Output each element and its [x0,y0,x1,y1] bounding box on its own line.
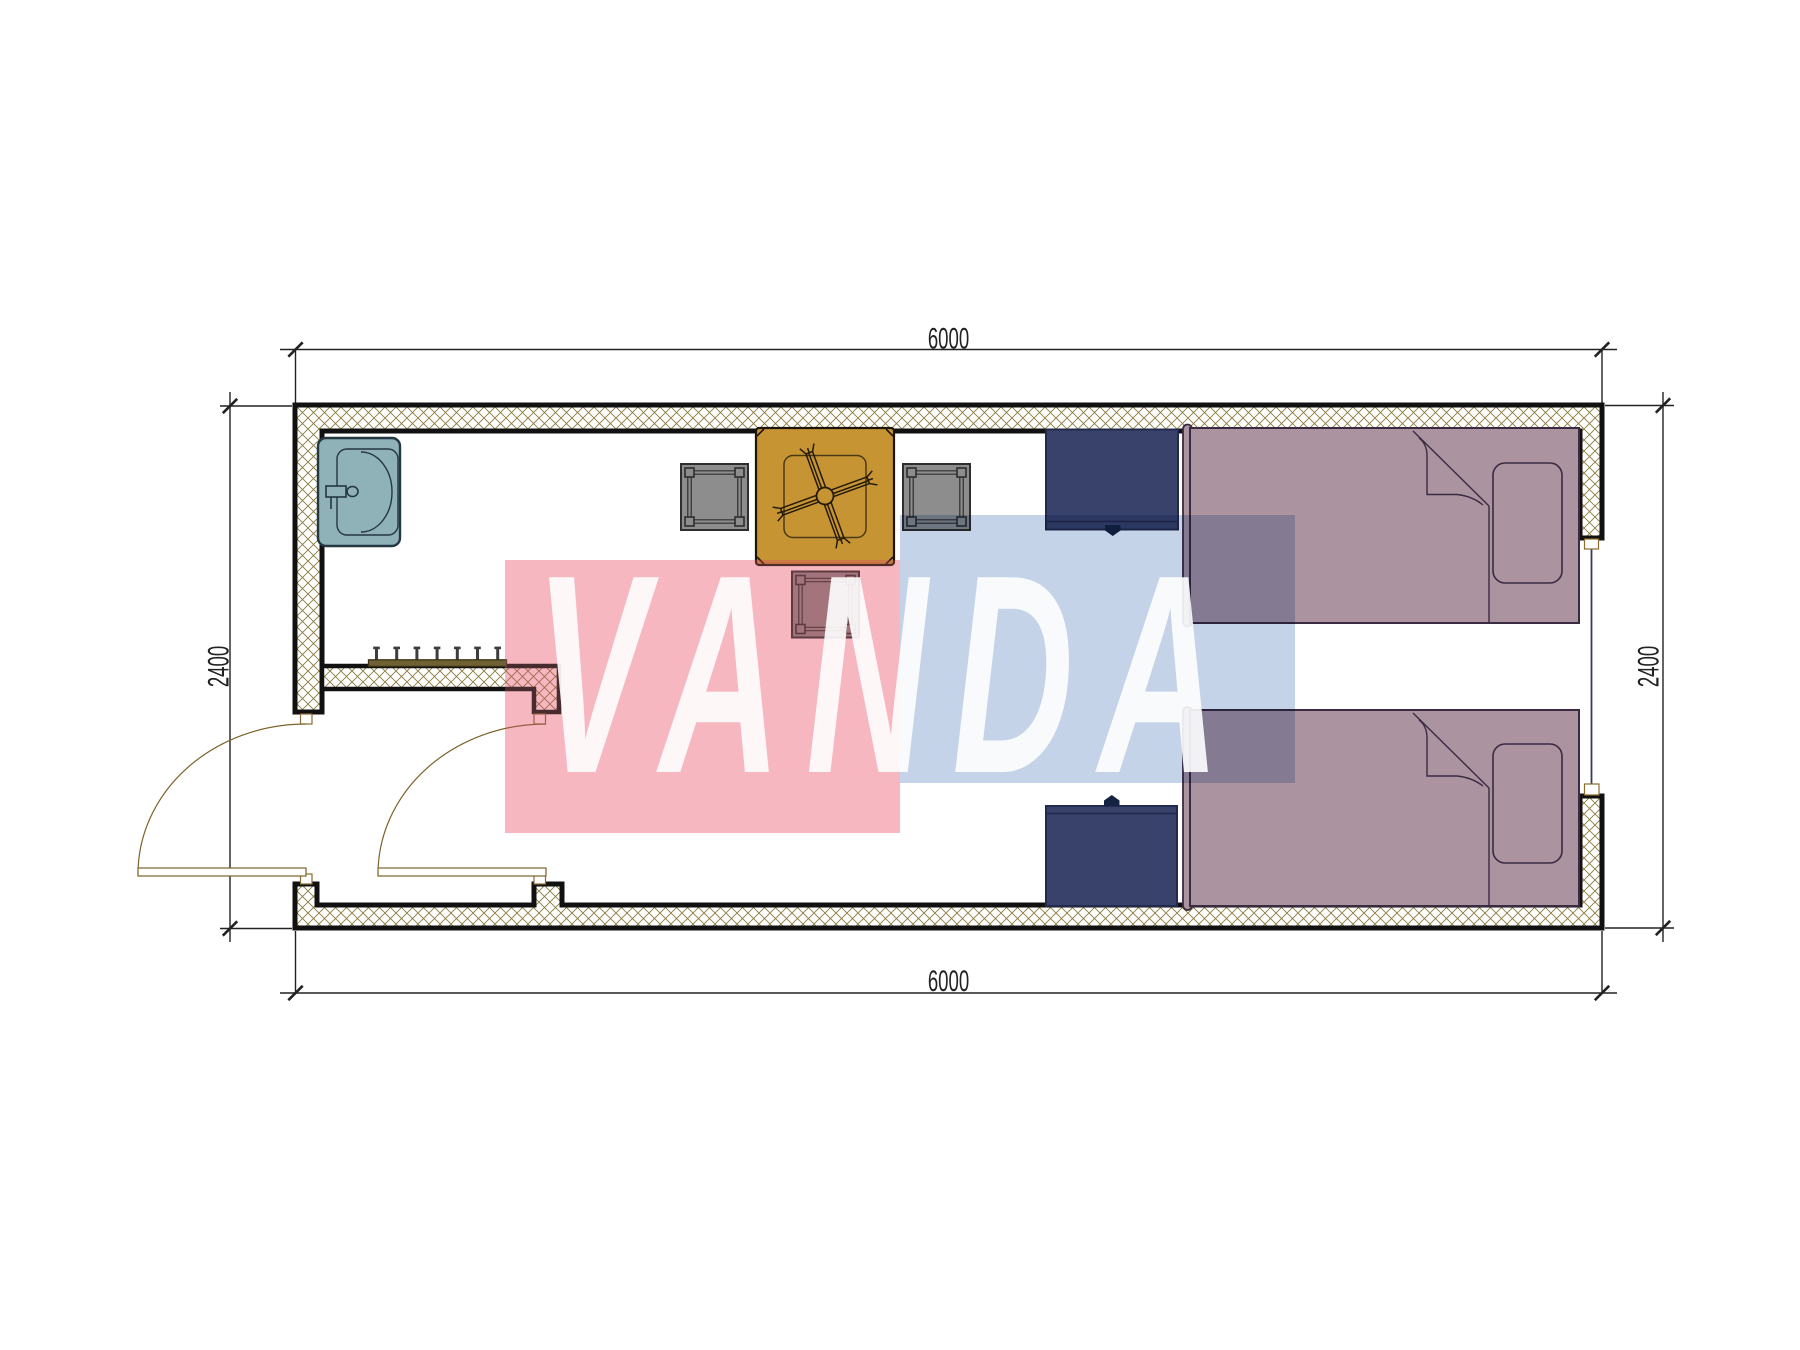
svg-text:2400: 2400 [202,646,236,687]
svg-text:6000: 6000 [928,965,969,999]
svg-text:VANDA: VANDA [535,517,1245,833]
svg-text:6000: 6000 [928,322,969,356]
svg-text:2400: 2400 [1632,646,1666,687]
